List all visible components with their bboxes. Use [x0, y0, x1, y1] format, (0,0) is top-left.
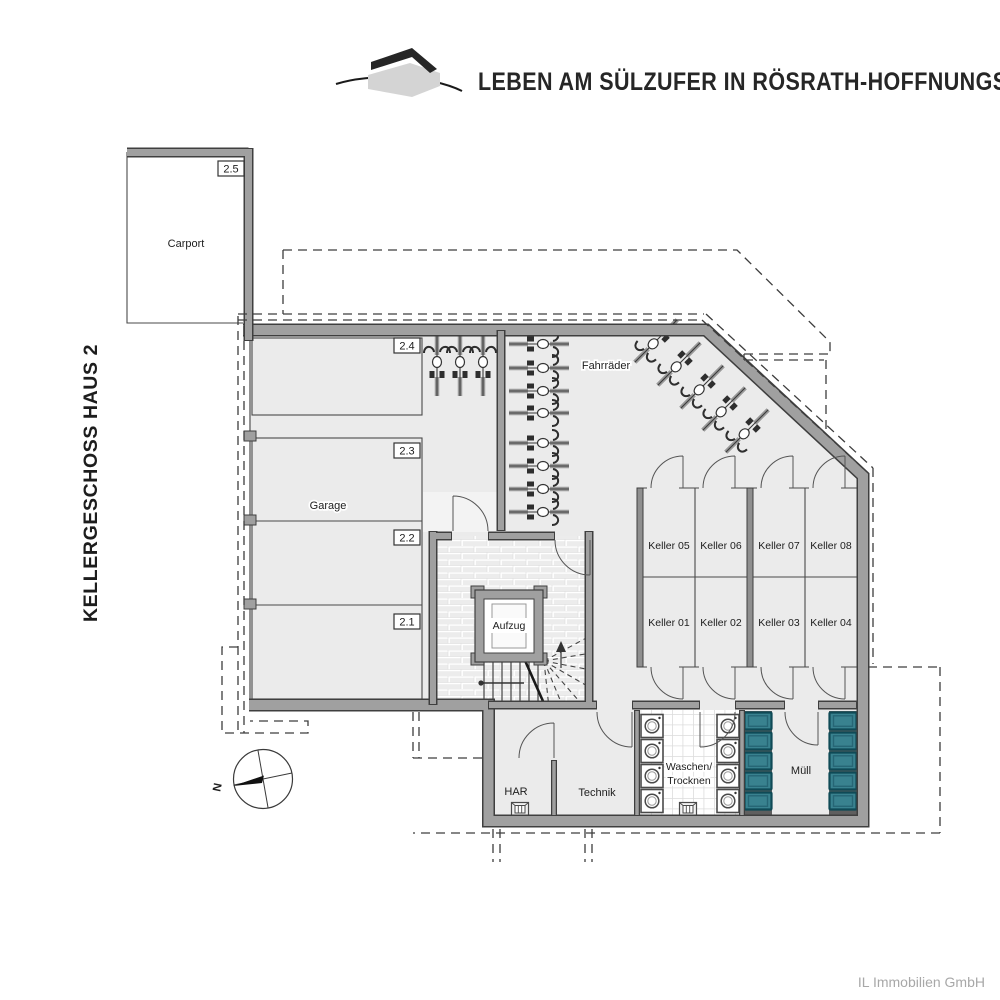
bin-icon [745, 713, 772, 730]
label-laundry-1: Waschen/ [666, 761, 712, 773]
header: LEBEN AM SÜLZUFER IN RÖSRATH-HOFFNUNGSTH… [336, 48, 1000, 97]
unit-space-23: 2.3 [399, 446, 414, 458]
plan-side-label: KELLERGESCHOSS HAUS 2 [80, 344, 102, 622]
label-garage: Garage [310, 500, 347, 512]
washer-icon [641, 790, 663, 813]
unit-space-22: 2.2 [399, 533, 414, 545]
label-keller-01: Keller 01 [648, 617, 690, 629]
label-keller-05: Keller 05 [648, 540, 690, 552]
label-keller-08: Keller 08 [810, 540, 852, 552]
washer-icon [641, 740, 663, 763]
washer-icon [717, 740, 739, 763]
label-carport: Carport [168, 238, 205, 250]
label-keller-06: Keller 06 [700, 540, 742, 552]
label-waste: Müll [791, 765, 811, 777]
label-technik: Technik [578, 787, 616, 799]
washer-icon [641, 765, 663, 788]
label-har: HAR [504, 786, 527, 798]
bin-icon [830, 713, 857, 730]
drain-icon [512, 803, 529, 816]
label-laundry-2: Trocknen [667, 775, 711, 787]
unit-space-24: 2.4 [399, 341, 414, 353]
bin-icon [830, 793, 857, 810]
label-keller-03: Keller 03 [758, 617, 800, 629]
unit-carport: 2.5 [223, 164, 238, 176]
bin-icon [745, 733, 772, 750]
washer-icon [641, 715, 663, 738]
bin-icon [745, 753, 772, 770]
washer-icon [717, 790, 739, 813]
bin-icon [830, 733, 857, 750]
floorplan-page: 2.5 2.4 2.3 2.2 2.1 Carport Garage Fahrr… [0, 0, 1000, 1000]
label-keller-07: Keller 07 [758, 540, 800, 552]
unit-space-21: 2.1 [399, 617, 414, 629]
footer-company: IL Immobilien GmbH [858, 974, 985, 990]
bin-icon [830, 773, 857, 790]
label-elevator: Aufzug [493, 620, 526, 632]
washer-icon [717, 715, 739, 738]
compass-north-label: N [211, 782, 224, 793]
washer-icon [717, 765, 739, 788]
floor-plan-svg: 2.5 2.4 2.3 2.2 2.1 Carport Garage Fahrr… [0, 0, 1000, 1000]
label-keller-02: Keller 02 [700, 617, 742, 629]
label-keller-04: Keller 04 [810, 617, 852, 629]
compass-icon: N [211, 750, 292, 809]
page-title: LEBEN AM SÜLZUFER IN RÖSRATH-HOFFNUNGSTH… [478, 67, 1000, 95]
label-bikes: Fahrräder [582, 360, 631, 372]
bin-icon [830, 753, 857, 770]
house-logo-icon [336, 48, 462, 97]
bin-icon [745, 773, 772, 790]
bin-icon [745, 793, 772, 810]
drain-icon [680, 803, 697, 816]
